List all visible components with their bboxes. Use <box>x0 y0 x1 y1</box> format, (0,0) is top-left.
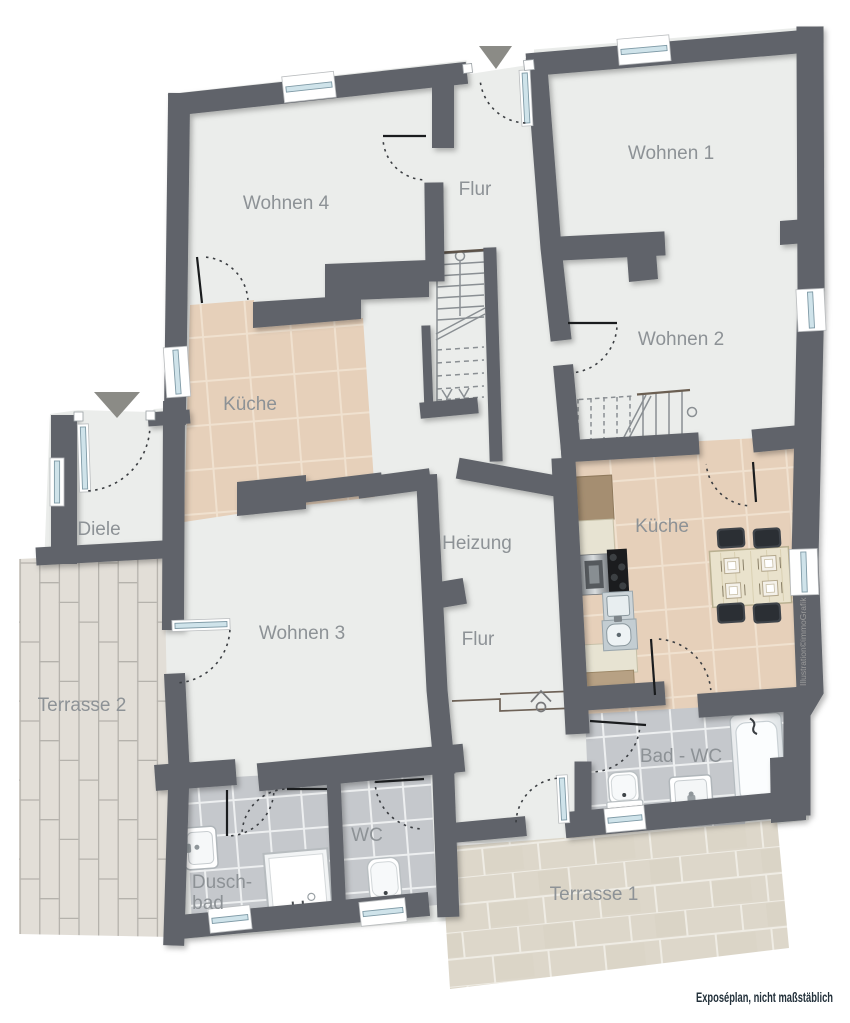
svg-text:Terrasse 2: Terrasse 2 <box>38 695 127 716</box>
svg-text:Flur: Flur <box>462 629 495 650</box>
svg-text:Küche: Küche <box>635 516 689 537</box>
svg-text:Küche: Küche <box>223 394 277 415</box>
svg-text:Flur: Flur <box>459 179 492 200</box>
svg-text:Wohnen 3: Wohnen 3 <box>259 623 345 644</box>
svg-text:Terrasse 1: Terrasse 1 <box>550 884 639 905</box>
svg-text:Heizung: Heizung <box>442 533 512 554</box>
svg-text:Diele: Diele <box>77 519 120 540</box>
svg-text:Wohnen 2: Wohnen 2 <box>638 329 724 350</box>
svg-text:bad: bad <box>192 893 224 914</box>
svg-text:Exposéplan, nicht maßstäblich: Exposéplan, nicht maßstäblich <box>696 989 833 1005</box>
svg-text:Bad - WC: Bad - WC <box>640 746 722 767</box>
svg-text:Dusch-: Dusch- <box>192 872 252 893</box>
svg-text:Wohnen 4: Wohnen 4 <box>243 193 330 214</box>
svg-text:WC: WC <box>351 825 383 846</box>
svg-text:Illustration©immoGrafik: Illustration©immoGrafik <box>798 597 808 686</box>
svg-text:Wohnen 1: Wohnen 1 <box>628 143 714 164</box>
